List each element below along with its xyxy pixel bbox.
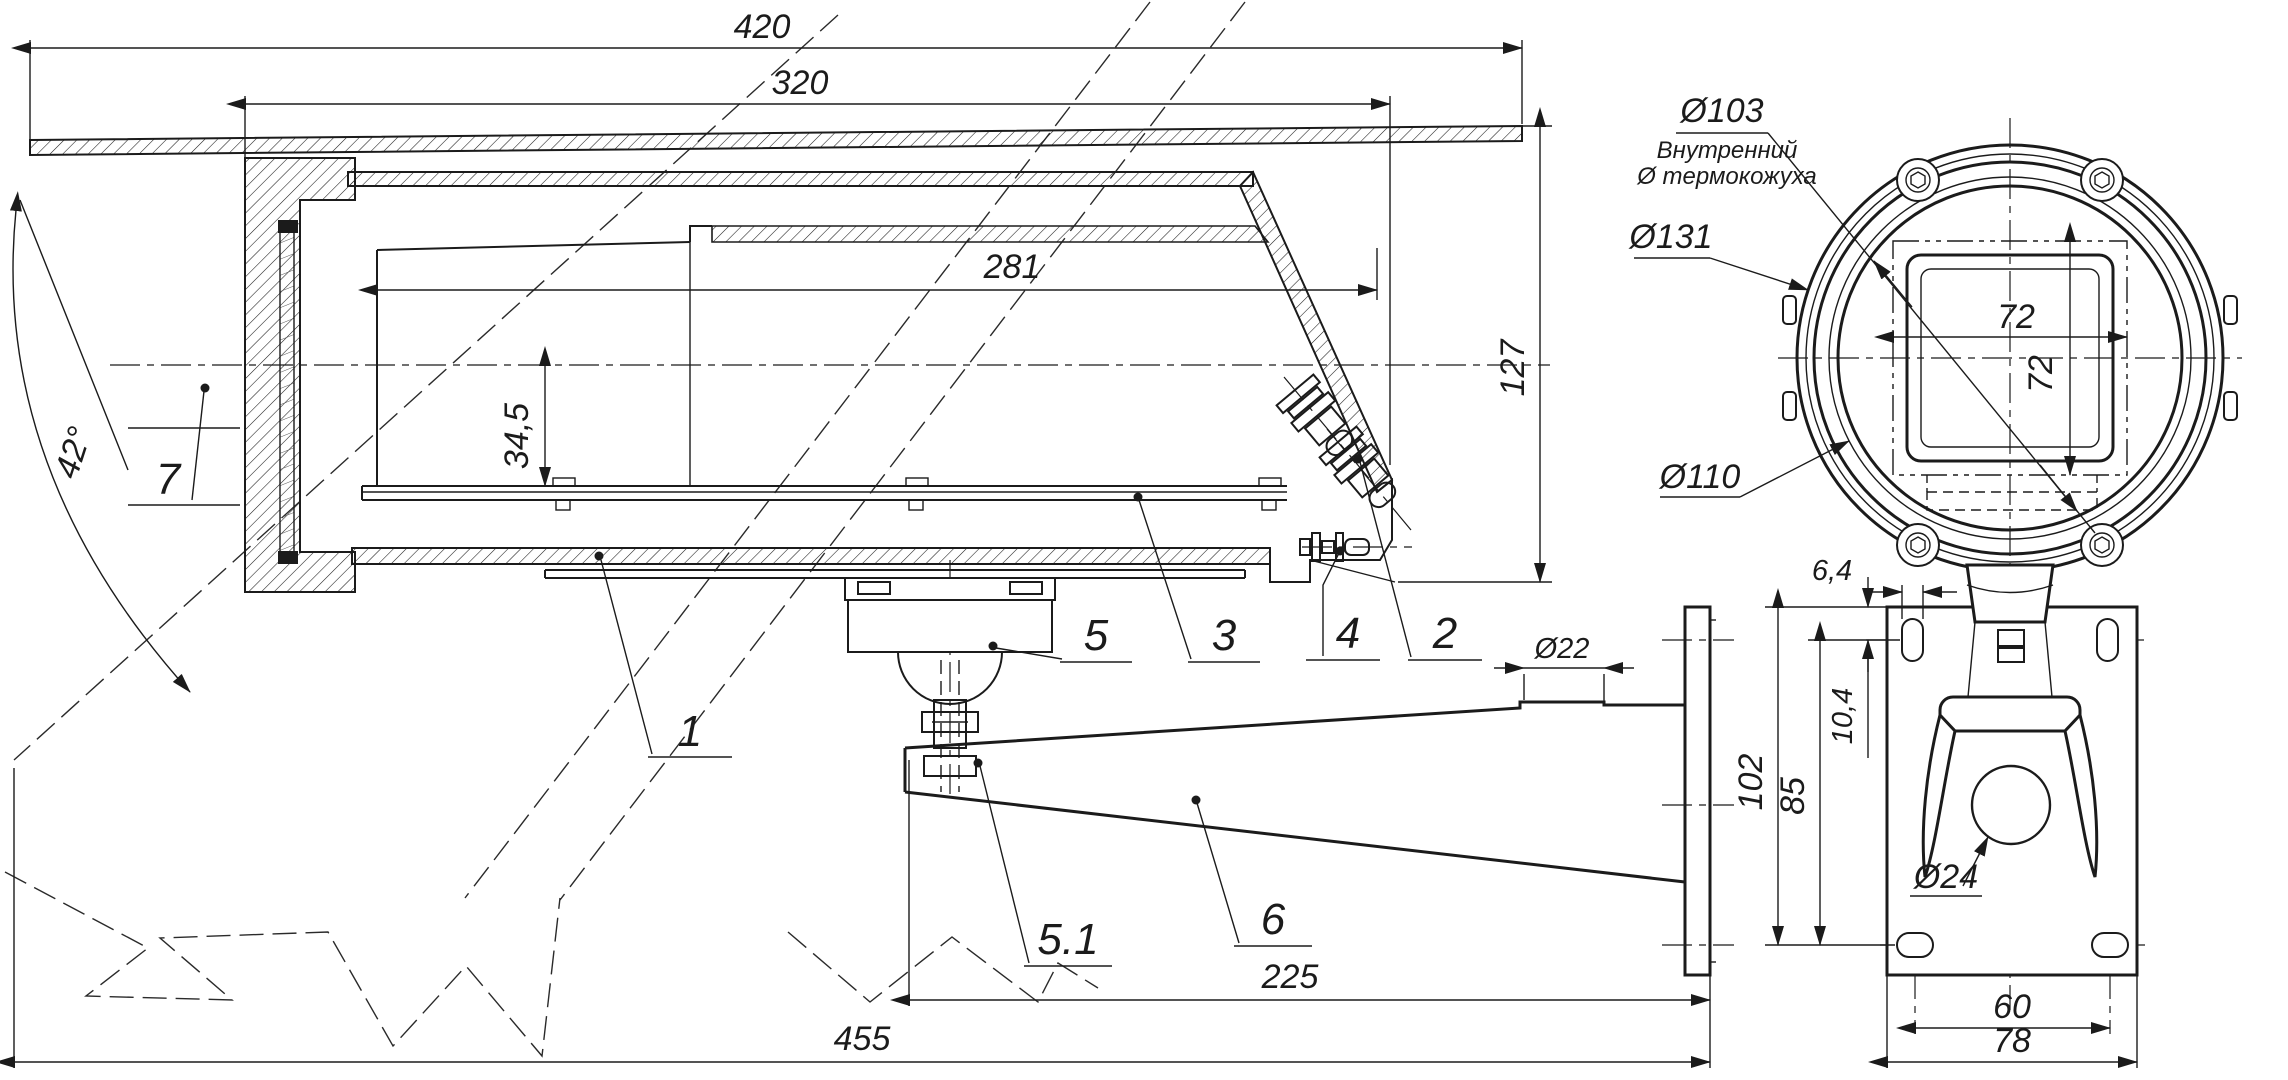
dim-internal-length: 281	[983, 248, 1041, 286]
svg-text:3: 3	[1212, 611, 1237, 660]
bottom-tray	[545, 570, 1245, 578]
dim-housing-height: 127	[1494, 339, 1532, 397]
lug	[2224, 392, 2237, 420]
window-slide	[1927, 492, 2097, 510]
dim-arm-tube: Ø22	[1534, 633, 1590, 665]
sun-shield	[30, 126, 1522, 155]
part-label-5-1: 5.1	[974, 759, 1113, 967]
svg-text:1: 1	[678, 707, 702, 756]
bracket-arm	[905, 702, 1685, 882]
svg-text:5: 5	[1084, 611, 1109, 660]
dim-ring-diameter: Ø110	[1659, 458, 1741, 496]
drawing-sheet: 420 320 281 34,5 42° 127 Ø22 225	[0, 0, 2288, 1080]
sled-rail	[362, 478, 1287, 510]
lug	[1783, 296, 1796, 324]
front-view	[1768, 133, 2237, 571]
dim-total-depth: 455	[834, 1020, 891, 1058]
rear-cover	[1240, 172, 1392, 492]
dim-hole-pitch: 60	[1993, 988, 2031, 1026]
note-inner-line1: Внутренний	[1657, 137, 1798, 164]
technical-drawing: 420 320 281 34,5 42° 127 Ø22 225	[0, 0, 2288, 1080]
screw	[2081, 159, 2123, 201]
svg-text:5.1: 5.1	[1037, 915, 1098, 964]
part-label-7: 7	[128, 384, 240, 506]
dim-tilt-angle: 42°	[48, 422, 100, 483]
svg-text:2: 2	[1432, 609, 1457, 658]
screw	[2081, 524, 2123, 566]
dim-arm-reach: 225	[1261, 958, 1319, 996]
front-view-dimensions: Ø103 Внутренний Ø термокожуха Ø131 Ø110 …	[1628, 92, 2127, 497]
dim-body-length: 320	[772, 64, 829, 102]
dim-outer-diameter: Ø131	[1628, 218, 1712, 256]
dim-inner-diameter: Ø103	[1679, 92, 1763, 130]
inner-shell	[712, 226, 1268, 242]
wall-plate-side	[1685, 607, 1716, 975]
front-bezel	[245, 158, 355, 592]
dim-overall-length: 420	[734, 8, 791, 46]
dim-window-width: 72	[1997, 298, 2035, 336]
rear-lower-body	[1270, 480, 1392, 582]
svg-text:4: 4	[1336, 609, 1360, 658]
dim-hole-span: 85	[1774, 777, 1812, 815]
part-labels: 7 1 5 3 4 2 5.1	[128, 384, 1482, 967]
dim-arm-hole: Ø24	[1913, 858, 1978, 896]
window-glass	[280, 230, 294, 554]
part-label-4: 4	[1306, 547, 1380, 661]
dim-slot-width: 6,4	[1812, 555, 1852, 587]
svg-text:6: 6	[1261, 895, 1286, 944]
part-label-2: 2	[1354, 455, 1483, 661]
dim-slot-offset: 10,4	[1827, 688, 1859, 744]
svg-text:7: 7	[156, 455, 182, 504]
side-view	[30, 126, 1716, 975]
bracket-rear-view	[1887, 565, 2137, 975]
part-label-6: 6	[1192, 796, 1313, 947]
clamp-bolt	[1998, 630, 2024, 662]
part-label-1: 1	[595, 552, 733, 758]
dim-plate-height: 102	[1732, 754, 1770, 811]
glass-seal-bottom	[278, 551, 298, 564]
lug	[2224, 296, 2237, 324]
screw	[1897, 159, 1939, 201]
bracket-neck	[1967, 565, 2053, 622]
housing-bottom-wall	[352, 548, 1270, 564]
screw	[1897, 524, 1939, 566]
arm-hole	[1972, 766, 2050, 844]
dim-window-height: 72	[2022, 355, 2060, 393]
note-inner-line2: Ø термокожуха	[1636, 163, 1817, 190]
lug	[1783, 392, 1796, 420]
phantom-tilted-outline	[5, 2, 1245, 1056]
dim-axis-offset: 34,5	[498, 403, 536, 469]
housing-top-wall	[348, 172, 1253, 186]
glass-seal-top	[278, 220, 298, 233]
dim-plate-width: 78	[1993, 1022, 2031, 1060]
